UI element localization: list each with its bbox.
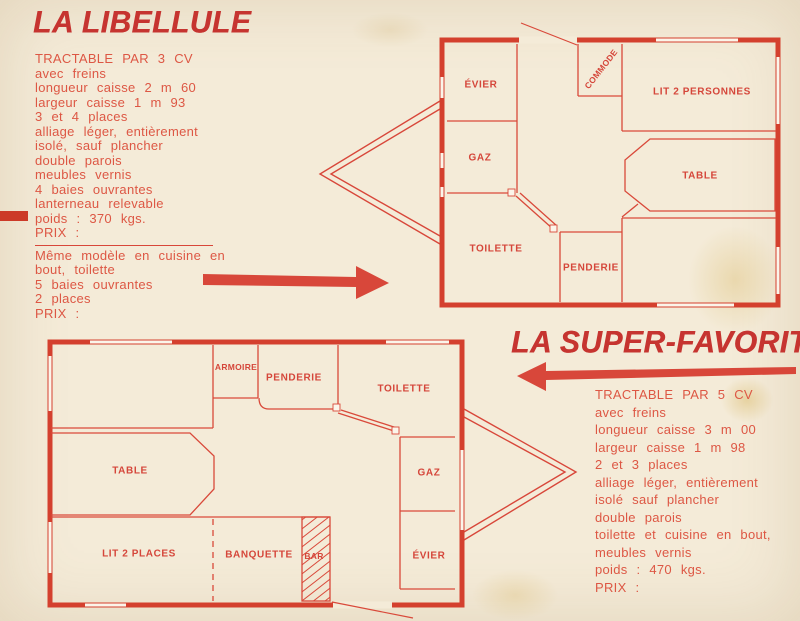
spec-line: longueur caisse 3 m 00 xyxy=(595,421,800,439)
spec-line: TRACTABLE PAR 5 CV xyxy=(595,386,800,404)
spec-line: TRACTABLE PAR 3 CV xyxy=(35,52,295,67)
room-label-evier: ÉVIER xyxy=(464,80,497,91)
floor-plan-super-favorite xyxy=(50,342,576,621)
spec-line: avec freins xyxy=(35,67,295,82)
spec-line: lanterneau relevable xyxy=(35,197,295,212)
spec-line: double parois xyxy=(35,154,295,169)
spec-line: alliage léger, entièrement xyxy=(35,125,295,140)
room-label-bar: BAR xyxy=(304,551,323,561)
spec-line: poids : 370 kgs. xyxy=(35,212,295,227)
spec-line: toilette et cuisine en bout, xyxy=(595,526,800,544)
spec-line: double parois xyxy=(595,509,800,527)
spec-line: bout, toilette xyxy=(35,263,295,278)
room-label-gaz: GAZ xyxy=(418,468,441,479)
room-label-penderie: PENDERIE xyxy=(266,373,322,384)
spec-line: largeur caisse 1 m 98 xyxy=(595,439,800,457)
room-label-table: TABLE xyxy=(112,466,148,477)
spec-line: meubles vernis xyxy=(595,544,800,562)
room-label-toilette: TOILETTE xyxy=(470,244,523,255)
spec-line: PRIX : xyxy=(595,579,800,597)
room-label-lit-2-places: LIT 2 PLACES xyxy=(102,549,176,560)
floor-plan-libellule xyxy=(320,23,778,305)
spec-line: alliage léger, entièrement xyxy=(595,474,800,492)
spec-line: isolé, sauf plancher xyxy=(35,139,295,154)
room-label-toilette: TOILETTE xyxy=(378,384,431,395)
room-label-gaz: GAZ xyxy=(469,153,492,164)
room-label-banquette: BANQUETTE xyxy=(225,550,293,561)
spec-line: 3 et 4 places xyxy=(35,110,295,125)
model-title-super-favorite: LA SUPER-FAVORITE xyxy=(511,325,800,361)
spec-line: PRIX : xyxy=(35,307,295,322)
spec-line: PRIX : xyxy=(35,226,295,241)
spec-line: 4 baies ouvrantes xyxy=(35,183,295,198)
spec-line: meubles vernis xyxy=(35,168,295,183)
room-label-armoire: ARMOIRE xyxy=(215,362,257,372)
spec-line: isolé sauf plancher xyxy=(595,491,800,509)
libellule-spec-list: TRACTABLE PAR 3 CV avec freins longueur … xyxy=(35,52,295,321)
room-label-lit-2-personnes: LIT 2 PERSONNES xyxy=(653,87,751,98)
spec-line: largeur caisse 1 m 93 xyxy=(35,96,295,111)
print-mark xyxy=(0,211,28,221)
room-label-penderie: PENDERIE xyxy=(563,263,619,274)
spec-line: Même modèle en cuisine en xyxy=(35,249,295,264)
room-label-table: TABLE xyxy=(682,171,718,182)
spec-line: longueur caisse 2 m 60 xyxy=(35,81,295,96)
spec-line: poids : 470 kgs. xyxy=(595,561,800,579)
super-favorite-spec-list: TRACTABLE PAR 5 CV avec freins longueur … xyxy=(595,386,800,596)
spec-line: avec freins xyxy=(595,404,800,422)
spec-line: 2 places xyxy=(35,292,295,307)
spec-line: 2 et 3 places xyxy=(595,456,800,474)
section-divider xyxy=(35,245,213,246)
room-label-evier: ÉVIER xyxy=(412,551,445,562)
brochure-page: LA LIBELLULE LA SUPER-FAVORITE TRACTABLE… xyxy=(0,0,800,621)
model-title-libellule: LA LIBELLULE xyxy=(33,5,251,41)
spec-line: 5 baies ouvrantes xyxy=(35,278,295,293)
